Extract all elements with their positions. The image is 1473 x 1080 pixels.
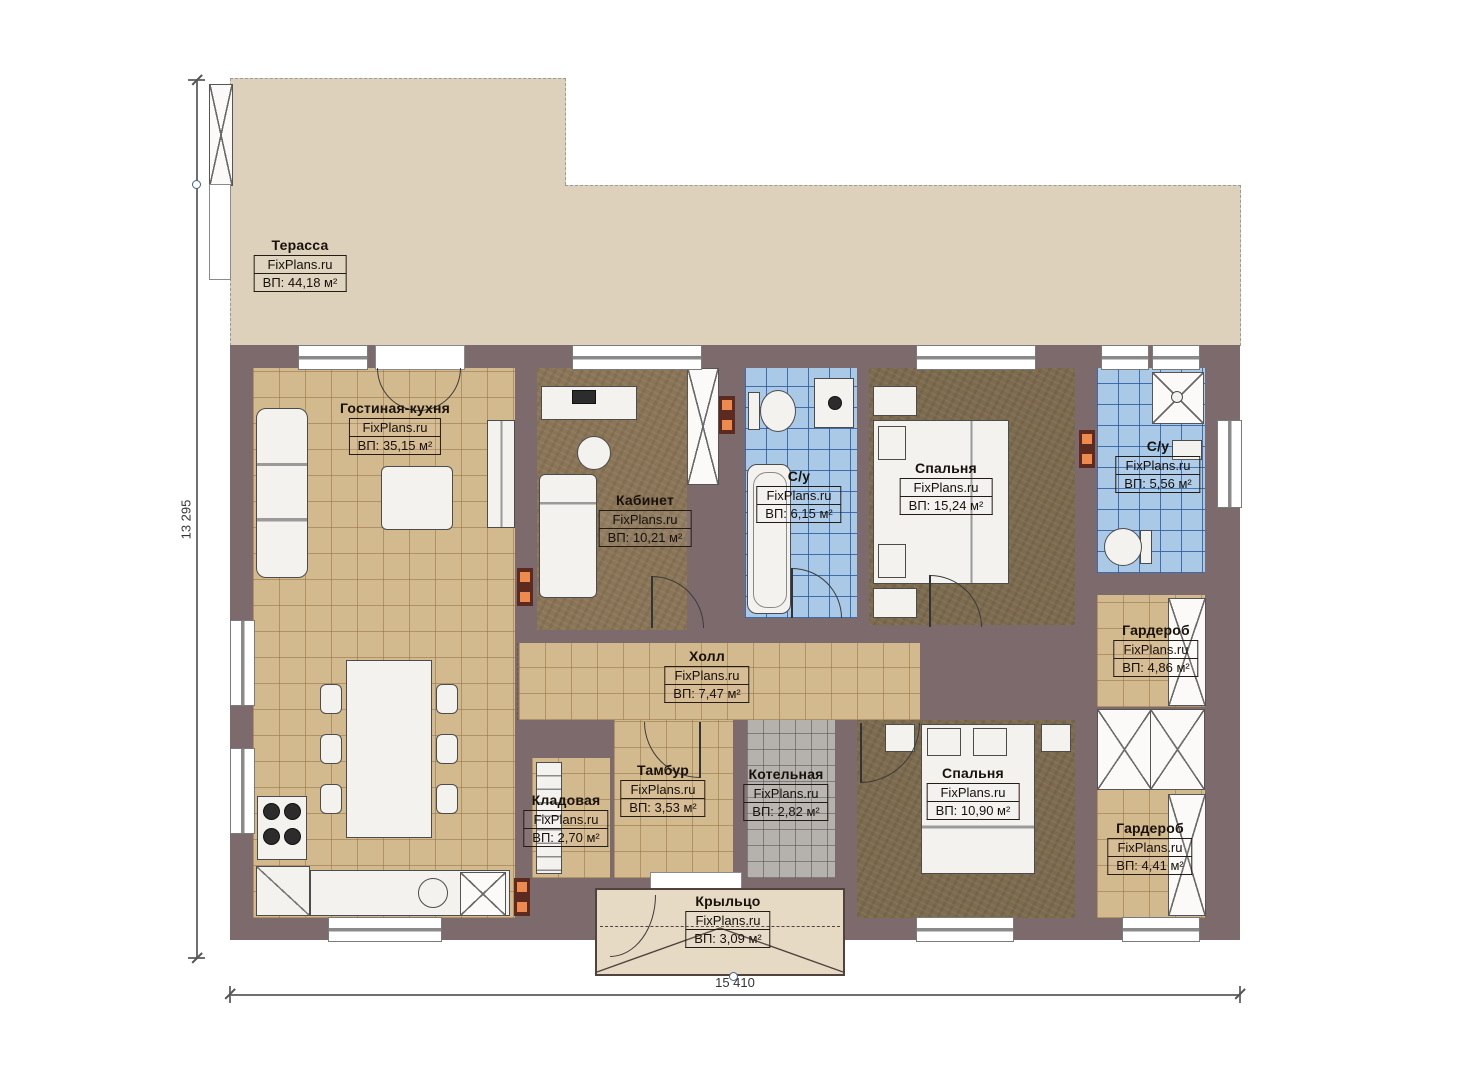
label-hall: Холл FixPlans.ru ВП: 7,47 м² xyxy=(664,648,749,703)
terrace-column-lower xyxy=(209,184,231,280)
window-top-office xyxy=(572,345,702,370)
watermark: FixPlans.ru xyxy=(900,478,993,497)
nightstand xyxy=(873,588,917,618)
door-leaf-office xyxy=(651,576,653,628)
label-bedroom2: Спальня FixPlans.ru ВП: 10,90 м² xyxy=(927,765,1020,820)
closet-top-center xyxy=(687,368,719,485)
room-name: Котельная xyxy=(743,766,828,782)
label-boxes: FixPlans.ru ВП: 10,90 м² xyxy=(927,783,1020,820)
vent-bath1 xyxy=(719,396,735,434)
label-boxes: FixPlans.ru ВП: 44,18 м² xyxy=(254,255,347,292)
dining-table xyxy=(346,660,432,838)
sofa xyxy=(256,408,308,578)
nightstand xyxy=(1041,724,1071,752)
label-boxes: FixPlans.ru ВП: 4,86 м² xyxy=(1113,640,1198,677)
room-name: Гардероб xyxy=(1113,622,1198,638)
nightstand xyxy=(873,386,917,416)
label-boxes: FixPlans.ru ВП: 6,15 м² xyxy=(756,486,841,523)
label-vestibule: Тамбур FixPlans.ru ВП: 3,53 м² xyxy=(620,762,705,817)
label-wardrobe2: Гардероб FixPlans.ru ВП: 4,41 м² xyxy=(1107,820,1192,875)
toilet-bowl xyxy=(760,390,796,432)
terrace-floor xyxy=(230,78,566,346)
window-top-living xyxy=(298,345,368,370)
watermark: FixPlans.ru xyxy=(1115,456,1200,475)
vent-kitchen xyxy=(514,878,530,916)
door-leaf-bedroom2 xyxy=(860,723,862,783)
washer-door xyxy=(828,396,842,410)
label-bedroom1: Спальня FixPlans.ru ВП: 15,24 м² xyxy=(900,460,993,515)
vent-living xyxy=(517,568,533,606)
dim-height-label: 13 295 xyxy=(179,480,194,560)
room-name: Кладовая xyxy=(523,792,608,808)
dining-chair xyxy=(320,734,342,764)
room-area: ВП: 5,56 м² xyxy=(1115,475,1200,493)
room-name: Спальня xyxy=(927,765,1020,781)
window-left-a xyxy=(230,620,255,706)
dining-chair xyxy=(320,684,342,714)
label-boxes: FixPlans.ru ВП: 2,70 м² xyxy=(523,810,608,847)
dim-line-bottom xyxy=(230,994,1240,996)
burner xyxy=(284,803,301,820)
dining-chair xyxy=(320,784,342,814)
floor-plan: Терасса FixPlans.ru ВП: 44,18 м² Гостина… xyxy=(0,0,1473,1080)
label-porch: Крыльцо FixPlans.ru ВП: 3,09 м² xyxy=(685,893,770,948)
watermark: FixPlans.ru xyxy=(599,510,692,529)
dim-node xyxy=(192,180,201,189)
coffee-table xyxy=(381,466,453,530)
burner xyxy=(263,803,280,820)
watermark: FixPlans.ru xyxy=(664,666,749,685)
closet-right-a xyxy=(1097,709,1152,790)
terrace-door-opening xyxy=(375,345,465,370)
watermark: FixPlans.ru xyxy=(620,780,705,799)
label-living: Гостиная-кухня FixPlans.ru ВП: 35,15 м² xyxy=(340,400,450,455)
dishwasher xyxy=(460,872,506,916)
label-boxes: FixPlans.ru ВП: 10,21 м² xyxy=(599,510,692,547)
label-boxes: FixPlans.ru ВП: 15,24 м² xyxy=(900,478,993,515)
toilet-tank xyxy=(748,392,760,430)
watermark: FixPlans.ru xyxy=(254,255,347,274)
watermark: FixPlans.ru xyxy=(685,911,770,930)
label-boxes: FixPlans.ru ВП: 35,15 м² xyxy=(349,418,442,455)
window-right-a xyxy=(1217,420,1242,508)
watermark: FixPlans.ru xyxy=(1113,640,1198,659)
door-leaf-bath1 xyxy=(791,568,793,618)
room-area: ВП: 15,24 м² xyxy=(900,497,993,515)
room-area: ВП: 4,86 м² xyxy=(1113,659,1198,677)
window-bottom-bedroom2 xyxy=(916,917,1014,942)
label-boxes: FixPlans.ru ВП: 3,09 м² xyxy=(685,911,770,948)
room-area: ВП: 10,21 м² xyxy=(599,529,692,547)
burner xyxy=(284,828,301,845)
label-bath1: С/у FixPlans.ru ВП: 6,15 м² xyxy=(756,468,841,523)
room-area: ВП: 35,15 м² xyxy=(349,437,442,455)
room-area: ВП: 2,82 м² xyxy=(743,803,828,821)
label-boiler: Котельная FixPlans.ru ВП: 2,82 м² xyxy=(743,766,828,821)
window-left-b xyxy=(230,748,255,834)
shower-drain xyxy=(1171,391,1183,403)
room-name: Холл xyxy=(664,648,749,664)
pillow xyxy=(878,426,906,460)
label-wardrobe1: Гардероб FixPlans.ru ВП: 4,86 м² xyxy=(1113,622,1198,677)
label-pantry: Кладовая FixPlans.ru ВП: 2,70 м² xyxy=(523,792,608,847)
dining-chair xyxy=(436,734,458,764)
room-name: Гостиная-кухня xyxy=(340,400,450,416)
terrace-floor-right xyxy=(565,185,1241,346)
dining-chair xyxy=(436,784,458,814)
window-top-bath2-a xyxy=(1101,345,1149,370)
terrace-column xyxy=(209,84,233,186)
room-area: ВП: 3,53 м² xyxy=(620,799,705,817)
corner-counter xyxy=(256,866,310,916)
watermark: FixPlans.ru xyxy=(927,783,1020,802)
hall-living-opening xyxy=(517,643,518,720)
dining-chair xyxy=(436,684,458,714)
porch-leader-dot xyxy=(729,972,738,981)
window-bottom-wardrobe2 xyxy=(1122,917,1200,942)
room-area: ВП: 3,09 м² xyxy=(685,930,770,948)
label-boxes: FixPlans.ru ВП: 5,56 м² xyxy=(1115,456,1200,493)
room-area: ВП: 7,47 м² xyxy=(664,685,749,703)
label-bath2: С/у FixPlans.ru ВП: 5,56 м² xyxy=(1115,438,1200,493)
door-leaf-bedroom1 xyxy=(929,575,931,627)
room-area: ВП: 10,90 м² xyxy=(927,802,1020,820)
pillow xyxy=(973,728,1007,756)
pillow xyxy=(927,728,961,756)
label-boxes: FixPlans.ru ВП: 2,82 м² xyxy=(743,784,828,821)
room-area: ВП: 4,41 м² xyxy=(1107,857,1192,875)
room-name: С/у xyxy=(1115,438,1200,454)
daybed xyxy=(539,474,597,598)
terrace-step-line xyxy=(565,78,566,185)
monitor xyxy=(572,390,596,404)
closet-right-b xyxy=(1150,709,1205,790)
room-name: Терасса xyxy=(254,237,347,253)
room-name: Гардероб xyxy=(1107,820,1192,836)
burner xyxy=(263,828,280,845)
watermark: FixPlans.ru xyxy=(743,784,828,803)
label-boxes: FixPlans.ru ВП: 7,47 м² xyxy=(664,666,749,703)
label-boxes: FixPlans.ru ВП: 3,53 м² xyxy=(620,780,705,817)
room-name: Спальня xyxy=(900,460,993,476)
window-top-bedroom1 xyxy=(916,345,1036,370)
pillow xyxy=(878,544,906,578)
label-boxes: FixPlans.ru ВП: 4,41 м² xyxy=(1107,838,1192,875)
watermark: FixPlans.ru xyxy=(523,810,608,829)
room-name: Крыльцо xyxy=(685,893,770,909)
watermark: FixPlans.ru xyxy=(1107,838,1192,857)
kitchen-sink xyxy=(418,878,448,908)
label-office: Кабинет FixPlans.ru ВП: 10,21 м² xyxy=(599,492,692,547)
room-area: ВП: 6,15 м² xyxy=(756,505,841,523)
cabinet-tall xyxy=(487,420,515,528)
watermark: FixPlans.ru xyxy=(756,486,841,505)
watermark: FixPlans.ru xyxy=(349,418,442,437)
room-name: Кабинет xyxy=(599,492,692,508)
room-name: Тамбур xyxy=(620,762,705,778)
room-area: ВП: 2,70 м² xyxy=(523,829,608,847)
room-area: ВП: 44,18 м² xyxy=(254,274,347,292)
window-top-bath2-b xyxy=(1152,345,1200,370)
vent-bedroom1 xyxy=(1079,430,1095,468)
room-name: С/у xyxy=(756,468,841,484)
label-terrace: Терасса FixPlans.ru ВП: 44,18 м² xyxy=(254,237,347,292)
toilet-bowl-2 xyxy=(1104,528,1142,566)
desk-chair xyxy=(577,436,611,470)
window-bottom-living xyxy=(328,917,442,942)
dim-line-left xyxy=(196,80,198,958)
